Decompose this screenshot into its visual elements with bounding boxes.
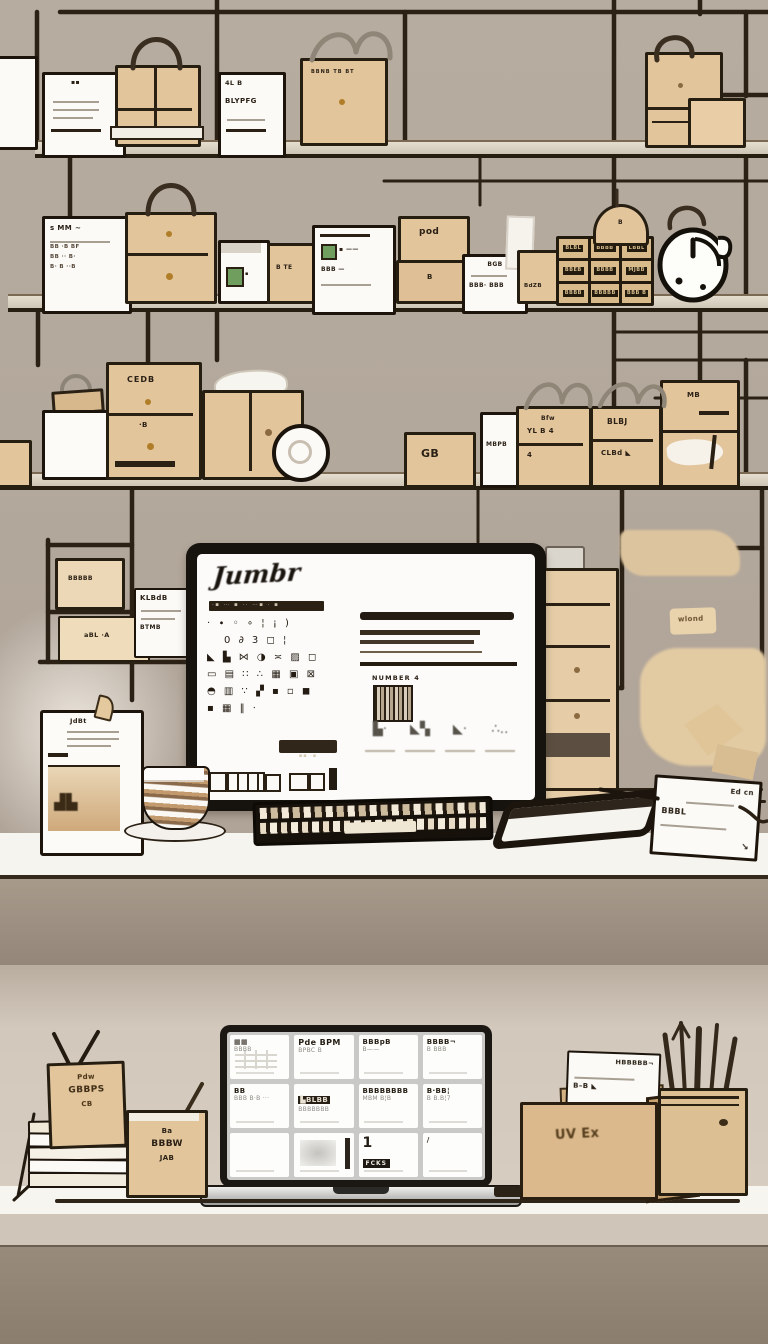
cup-knob <box>719 1119 728 1126</box>
content-bar <box>360 640 474 644</box>
card-line: Pdw <box>50 1072 122 1083</box>
solid-bar-shape <box>329 768 337 790</box>
box-label: UV Ex <box>555 1126 600 1144</box>
sketch-line <box>686 802 734 807</box>
icon-grid-row: ◣ ▙ ⋈ ◑ ≍ ▨ ◻ <box>207 652 339 669</box>
dashboard-card: BB BBB B·B ··· <box>230 1084 289 1128</box>
spacebar-key <box>344 821 416 834</box>
notepad-label: BBBL <box>661 806 687 817</box>
dashboard-card-sub: MBM B¦B <box>363 1095 414 1102</box>
content-line <box>360 651 482 653</box>
coffee-cup <box>142 766 210 830</box>
dashboard-card-sub: B BBB <box>427 1046 478 1053</box>
sketch-line <box>67 738 119 740</box>
card-line: CB <box>51 1099 123 1110</box>
tablet-screen <box>501 796 656 842</box>
dashboard-card: Pde BPM BPBC B <box>294 1035 353 1079</box>
icon-grid-row: 0 ∂ 3 ◻ ¦ <box>207 635 339 652</box>
outline-shape <box>209 772 227 792</box>
outline-shape <box>265 774 281 792</box>
dashboard-card: 1 FCKS <box>359 1133 418 1177</box>
barcode-label: NUMBER 4 <box>372 675 420 683</box>
laptop-dashboard-grid: ▦▦ BBBB Pde BPM BPBC B BBBpB B—— BBBB¬ B… <box>227 1032 485 1180</box>
stacked-paper <box>28 1172 128 1188</box>
dashboard-card-title: BBBBBBBB <box>363 1087 414 1095</box>
desk-front-panel <box>0 879 768 965</box>
cable <box>735 795 768 835</box>
icon-grid-row: · ∙ ◦ ∘ ¦ ¡ ) <box>207 618 339 635</box>
dashboard-card: / <box>423 1133 482 1177</box>
notepad-arrow: ↘ <box>741 843 750 854</box>
dashboard-card-title: / <box>427 1136 478 1144</box>
laptop-screen: ▦▦ BBBB Pde BPM BPBC B BBBpB B—— BBBB¬ B… <box>220 1025 492 1187</box>
cup-rim-line <box>661 1104 739 1106</box>
keyboard <box>252 796 493 846</box>
content-bar <box>360 630 480 635</box>
lower-counter-front <box>0 1245 768 1344</box>
open-box-front: UV Ex <box>520 1102 658 1200</box>
dashboard-card: B·BB¦ B B.B¦7 <box>423 1084 482 1128</box>
monitor-screen: Jumbr ·▪ ⋯ ▪ ·· ⋯▪ · ▪ · ∙ ◦ ∘ ¦ ¡ ) 0 ∂… <box>197 554 535 800</box>
box-line: Ba <box>129 1127 205 1135</box>
dashboard-card: ▙BLBB BBBBBBB <box>294 1084 353 1128</box>
box-line: BBBW <box>129 1139 205 1150</box>
dashboard-card-sub: FCKS <box>363 1159 390 1168</box>
dashboard-card-title: B·BB¦ <box>427 1087 478 1095</box>
lower-counter-band <box>0 1214 768 1245</box>
cup-rim-line <box>661 1096 739 1099</box>
dashboard-card-title: ▦▦ <box>234 1038 285 1046</box>
stand-photo-area: ▟▙ <box>48 765 120 831</box>
box-top-strip <box>129 1113 199 1121</box>
keyboard-row <box>260 802 486 819</box>
nav-glyphs: ·▪ ⋯ ▪ ·· ⋯▪ · ▪ <box>212 602 279 608</box>
dashboard-card-title: BBBB¬ <box>427 1038 478 1046</box>
dashboard-card <box>230 1133 289 1177</box>
dashboard-card-title: BBBpB <box>363 1038 414 1046</box>
dashboard-card-sub: B—— <box>363 1046 414 1053</box>
dashboard-card-title: BB <box>234 1087 285 1095</box>
outline-shape <box>227 772 265 792</box>
tan-card-on-stack: Pdw GBBPS CB <box>47 1061 128 1150</box>
dashboard-card-sub: BBBBBBB <box>298 1106 349 1113</box>
card-line: B–B ◣ <box>573 1081 653 1092</box>
dashboard-card: BBBB¬ B BBB <box>423 1035 482 1079</box>
dashboard-card-sub: B B.B¦7 <box>427 1095 478 1102</box>
content-bar <box>360 612 514 620</box>
laptop-base-notch <box>333 1187 389 1194</box>
product-thumbnails: ▙·◣▚◣·∴‥ <box>365 722 525 752</box>
icon-grid: · ∙ ◦ ∘ ¦ ¡ ) 0 ∂ 3 ◻ ¦◣ ▙ ⋈ ◑ ≍ ▨ ◻▭ ▤ … <box>207 618 339 720</box>
product-thumbnail: ∴‥ <box>485 722 515 752</box>
cup-rim <box>144 768 204 782</box>
sketch-line <box>67 745 111 747</box>
outline-shape <box>289 773 309 791</box>
button-glyphs: ▪▪ ·▪ <box>299 753 317 759</box>
product-thumbnail: ◣▚ <box>405 722 435 752</box>
dashboard-card: ▦▦ BBBB <box>230 1035 289 1079</box>
product-thumbnail: ▙· <box>365 722 395 752</box>
pen-holder-cup <box>658 1088 748 1196</box>
card-line: HBBBBB¬ <box>574 1058 654 1069</box>
icon-grid-row: ◓ ▥ ∵ ▞ ▪ ▫ ◼ <box>207 686 339 703</box>
icon-grid-row: ▪ ▦ ‖ ⋅ <box>207 703 339 720</box>
tablet-screen-band <box>508 796 655 819</box>
stand-photo-glyph: ▟▙ <box>54 793 78 811</box>
box-line: JAB <box>129 1154 205 1162</box>
desktop-monitor: Jumbr ·▪ ⋯ ▪ ·· ⋯▪ · ▪ · ∙ ◦ ∘ ¦ ¡ ) 0 ∂… <box>186 543 546 811</box>
sketch-line <box>67 731 119 733</box>
dashboard-card-sub: BPBC B <box>298 1047 349 1054</box>
dashboard-card-sub <box>345 1138 350 1169</box>
nav-bar: ·▪ ⋯ ▪ ·· ⋯▪ · ▪ <box>209 601 324 611</box>
card-line: GBBPS <box>50 1084 122 1097</box>
sketch-bar <box>48 753 68 757</box>
dashboard-card-title: Pde BPM <box>298 1038 349 1047</box>
site-logo: Jumbr <box>212 558 302 592</box>
dashboard-card-title: ▙BLBB <box>298 1096 330 1104</box>
content-bar <box>360 662 517 666</box>
dark-action-button: ▪▪ ·▪ <box>279 740 337 753</box>
product-thumbnail: ◣· <box>445 722 475 752</box>
small-parcel-box: Ba BBBW JAB <box>126 1110 208 1198</box>
laptop-base <box>200 1185 522 1207</box>
dashboard-card-sub: BBBB <box>234 1046 285 1053</box>
barcode <box>373 685 413 722</box>
sketch-line <box>660 824 726 831</box>
dashboard-card: BBBBBBBB MBM B¦B <box>359 1084 418 1128</box>
outline-shape <box>309 773 325 791</box>
dashboard-card <box>294 1133 353 1177</box>
dashboard-card-sub: BBB B·B ··· <box>234 1095 285 1102</box>
stacked-paper <box>28 1159 128 1175</box>
icon-grid-row: ▭ ▤ ∷ ∴ ▦ ▣ ⊠ <box>207 669 339 686</box>
dashboard-card-title: 1 <box>363 1136 414 1150</box>
sketch-line <box>574 1077 634 1081</box>
dashboard-card: BBBpB B—— <box>359 1035 418 1079</box>
